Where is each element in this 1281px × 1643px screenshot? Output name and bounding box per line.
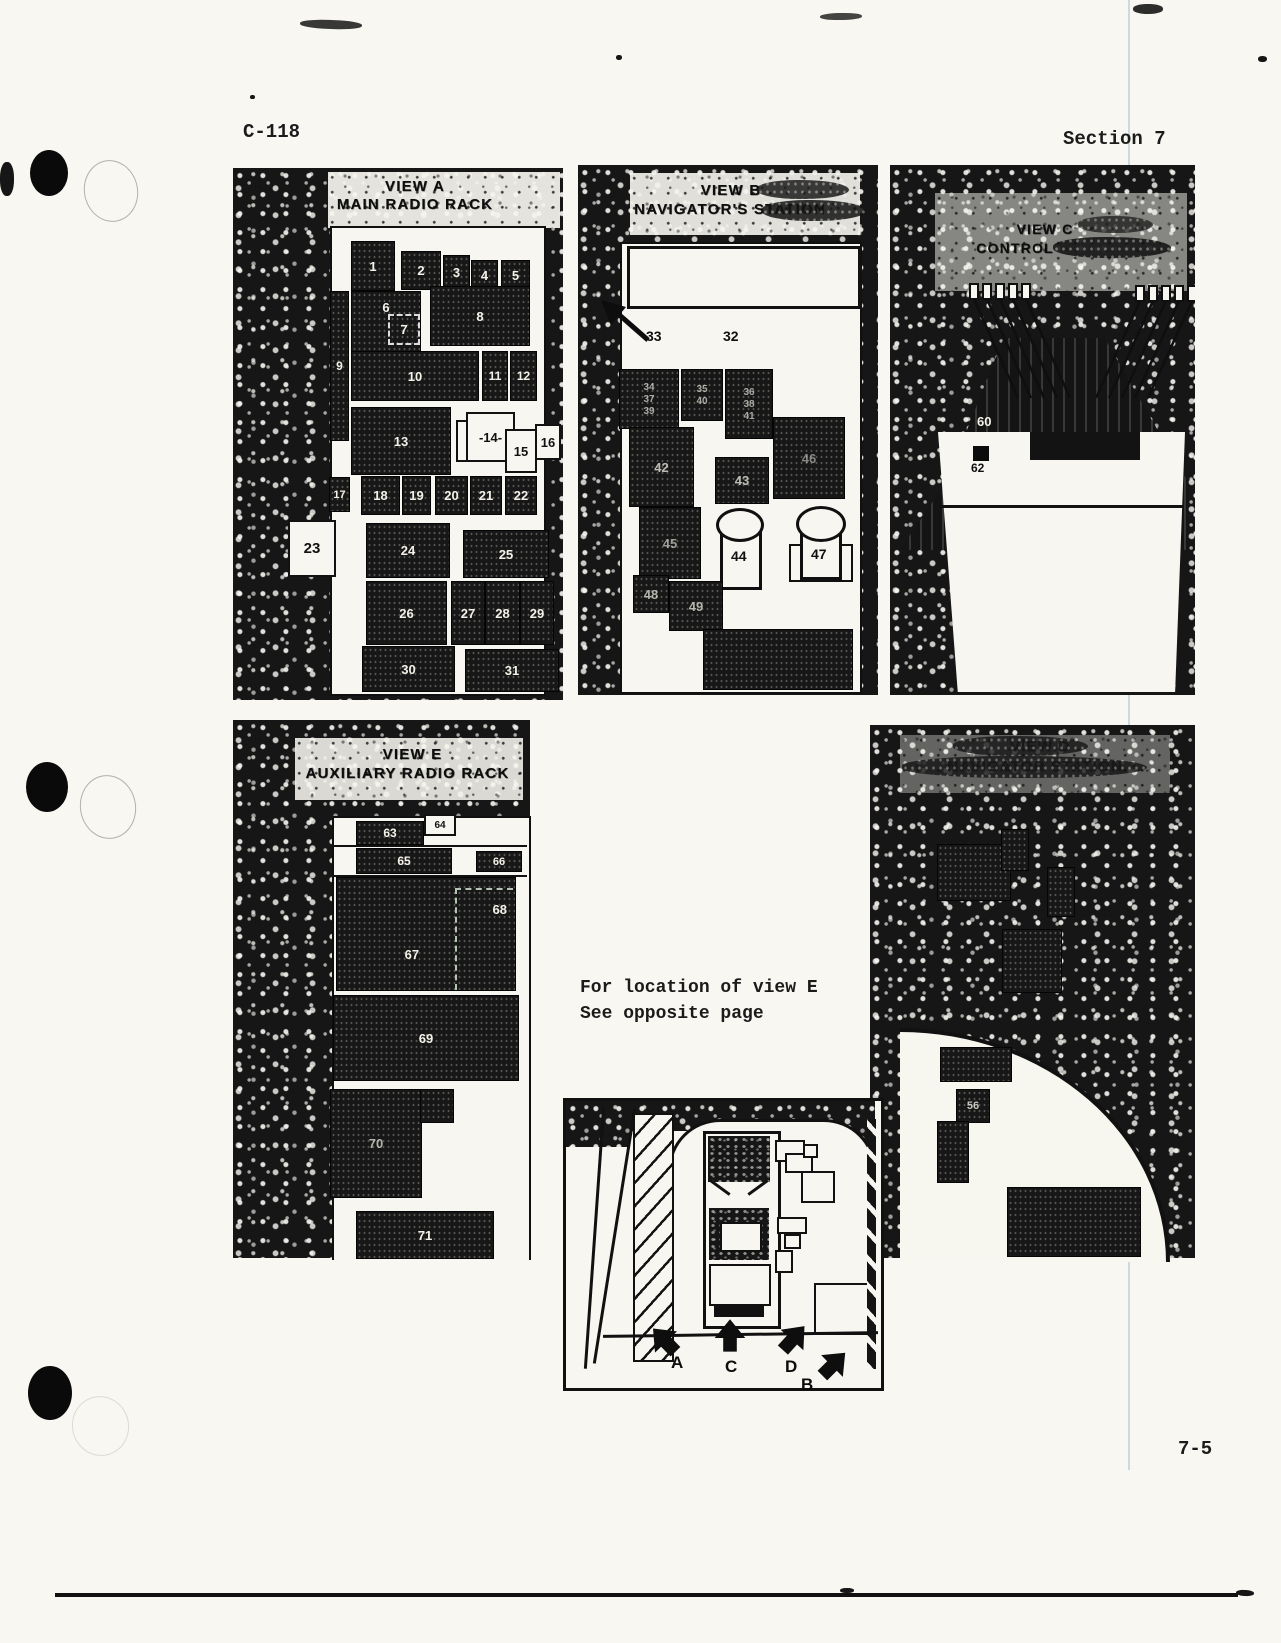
pedestal-face-line [940, 505, 1183, 508]
scan-dot [1258, 56, 1267, 62]
scanned-manual-page: C-118 Section 7 VIEW A MAIN RADIO RACK 1… [0, 0, 1281, 1643]
cabin-box [775, 1250, 793, 1273]
component-box-27: 27 [452, 582, 484, 644]
component-box-5: 5 [502, 261, 529, 289]
viewd-block [941, 1048, 1011, 1081]
pedestal-cable-fan [890, 258, 1195, 418]
component-box-unlabeled [704, 630, 852, 689]
component-box-65: 65 [357, 849, 451, 873]
label-62: 62 [971, 461, 984, 475]
component-box-7: 7 [388, 314, 420, 345]
punch-hole [26, 762, 68, 812]
arrow-a-label: A [671, 1353, 683, 1373]
component-box-22: 22 [506, 477, 536, 514]
label-32: 32 [723, 328, 739, 344]
note-line-1: For location of view E [580, 978, 818, 998]
cabin-box [803, 1144, 818, 1158]
component-box-20: 20 [436, 477, 467, 514]
view-e-subtitle: AUXILIARY RADIO RACK [285, 765, 530, 783]
label-47: 47 [811, 546, 827, 562]
component-box-46: 46 [774, 418, 844, 498]
viewd-block [1048, 868, 1074, 916]
label-44: 44 [731, 548, 747, 564]
component-box-3: 3 [444, 256, 469, 289]
component-box-43: 43 [716, 458, 768, 503]
component-box-69: 69 [334, 996, 518, 1080]
pencil-circle [75, 771, 141, 844]
cylinder-47-top [796, 506, 846, 542]
scan-smudge [1133, 4, 1163, 14]
section-label: Section 7 [1063, 128, 1166, 150]
footer-rule [55, 1593, 1238, 1597]
component-box-67: 67 68 [337, 878, 515, 990]
scan-dot [840, 1588, 854, 1593]
punch-hole [30, 150, 68, 196]
component-box-26: 26 [367, 582, 446, 644]
scan-smudge [820, 13, 862, 21]
ink-blot [902, 756, 1147, 778]
console-top-panel [708, 1136, 770, 1182]
console-desk [709, 1264, 771, 1306]
scan-dot [250, 95, 255, 99]
view-a-title: VIEW A [300, 178, 530, 196]
arrow-b-icon [807, 1341, 858, 1392]
rack-shelf-line [332, 845, 527, 847]
cabin-box [784, 1234, 801, 1249]
navigator-console [703, 1131, 781, 1329]
component-box-2: 2 [402, 252, 440, 289]
component-box-48: 48 [634, 576, 668, 612]
component-box-70: 70 [331, 1090, 421, 1197]
console-window [720, 1222, 762, 1252]
component-box-16: 16 [535, 424, 561, 460]
label-60: 60 [977, 414, 991, 429]
rack-shelf-line [332, 875, 527, 877]
console-base [714, 1306, 764, 1317]
cabin-corner [566, 1101, 630, 1147]
doc-code: C-118 [243, 121, 300, 143]
component-box-45: 45 [640, 508, 700, 578]
arrow-b-label: B [801, 1375, 813, 1395]
component-box-49: 49 [670, 582, 722, 630]
view-e-title: VIEW E [300, 746, 525, 764]
viewd-block [1003, 930, 1061, 992]
scan-smudge [300, 19, 362, 30]
ink-blot [762, 200, 866, 221]
component-square-62 [973, 446, 989, 461]
component-box-17: 17 [330, 478, 349, 511]
component-box-4: 4 [472, 261, 497, 289]
component-box-19: 19 [403, 477, 430, 514]
cabin-inset: A C D B [563, 1098, 884, 1391]
component-box-25: 25 [464, 531, 548, 577]
component-box-15: 15 [505, 429, 537, 473]
note-line-2: See opposite page [580, 1004, 764, 1024]
component-stack-35-40: 35 40 [682, 370, 722, 420]
component-box-63: 63 [357, 822, 423, 844]
component-box-30: 30 [363, 647, 454, 691]
arrow-c-icon [713, 1319, 747, 1357]
component-box-24: 24 [367, 524, 449, 577]
component-box-21: 21 [471, 477, 501, 514]
viewd-block [938, 845, 1010, 900]
ink-blot [757, 180, 849, 199]
viewd-block-56: 56 [957, 1090, 989, 1122]
component-stack-36-38-41: 36 38 41 [726, 370, 772, 438]
cabin-box [777, 1217, 807, 1234]
component-box-10: 10 [352, 352, 478, 400]
punch-hole [28, 1366, 72, 1420]
cylinder-44-top [716, 508, 764, 542]
component-box-18: 18 [362, 477, 399, 514]
component-box-23: 23 [288, 520, 336, 577]
ink-blot [1053, 237, 1171, 258]
nav-table-top [627, 246, 861, 309]
cabin-box [801, 1171, 835, 1203]
scan-dot [1236, 1590, 1254, 1597]
component-box-70-ext [421, 1090, 453, 1122]
arrow-d-label: D [785, 1357, 797, 1377]
ink-blot [953, 736, 1088, 756]
viewd-block [1002, 830, 1028, 870]
component-box-64: 64 [424, 814, 456, 836]
component-box-29: 29 [521, 582, 553, 644]
page-number: 7-5 [1178, 1438, 1212, 1460]
component-box-9: 9 [331, 292, 348, 440]
component-box-1: 1 [352, 242, 394, 290]
component-box-11: 11 [483, 352, 507, 400]
component-box-12: 12 [511, 352, 536, 400]
viewd-block [1008, 1188, 1140, 1256]
component-box-28: 28 [486, 582, 519, 644]
ink-blot [1078, 216, 1153, 233]
viewd-block [938, 1122, 968, 1182]
component-box-13: 13 [352, 408, 450, 474]
view-a-subtitle: MAIN RADIO RACK [300, 196, 530, 214]
component-box-8: 8 [431, 287, 529, 345]
callout-label-33: 33 [646, 328, 662, 344]
component-box-42: 42 [630, 428, 693, 506]
component-box-66: 66 [477, 852, 521, 871]
pencil-circle [66, 1390, 136, 1462]
arrow-c-label: C [725, 1357, 737, 1377]
component-box-71: 71 [357, 1212, 493, 1258]
scan-dot [616, 55, 622, 60]
pedestal-dark-tab [1030, 432, 1140, 460]
component-box-31: 31 [466, 650, 558, 691]
component-stack-34-37-39: 34 37 39 [620, 370, 678, 428]
pencil-circle [78, 155, 144, 227]
edge-mark [0, 162, 14, 196]
